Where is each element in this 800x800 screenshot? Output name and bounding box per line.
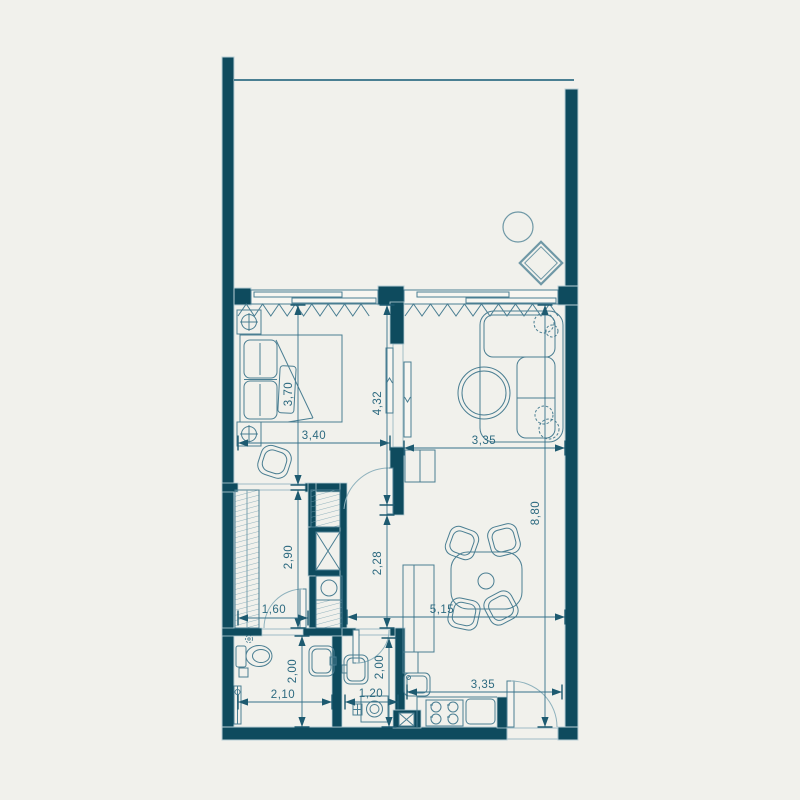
bedroom-furniture [237, 310, 342, 481]
sofa [480, 311, 563, 442]
living-sliding-panel [404, 362, 411, 437]
sofa-pillow [539, 419, 559, 439]
nightstand [237, 310, 261, 334]
window-pier-right [558, 286, 578, 305]
bedroom-door [344, 468, 393, 514]
living-window [404, 290, 558, 304]
dining-chair [443, 524, 481, 562]
divider-wall-upper [390, 302, 404, 344]
kitchen-side-sink [404, 673, 430, 696]
windows [251, 290, 558, 304]
floor-plan-drawing [0, 0, 800, 800]
nightstand [237, 422, 261, 446]
left-wall [222, 57, 234, 740]
terrace [503, 212, 562, 284]
entrance-door [507, 681, 557, 727]
counter-stub-wall [497, 697, 507, 728]
bottom-wall-left [222, 727, 507, 740]
dining-chair [481, 588, 522, 629]
bathroom-door-threshold [262, 629, 303, 635]
burner-icon [448, 714, 458, 724]
dining-set [443, 522, 523, 632]
tap-icon [407, 676, 411, 680]
bathroom-fixtures [234, 635, 336, 724]
floor-plan: 3,70 3,40 4,32 3,35 8,80 2,90 2,28 1,60 … [0, 0, 800, 800]
floor-drain [239, 668, 248, 677]
worktop-sink [466, 699, 495, 724]
folded-duvet [278, 366, 296, 414]
towel-rail [234, 686, 241, 724]
laundry-fixtures [342, 655, 388, 722]
sofa-pillow [546, 325, 558, 337]
bedroom-chair [255, 443, 294, 481]
dining-chair [446, 596, 482, 632]
bathroom-door [264, 589, 306, 628]
bed [240, 335, 342, 422]
entrance-threshold [507, 728, 558, 739]
toilet [236, 646, 272, 668]
bathroom-north-wall-left [222, 628, 262, 636]
washing-machine [353, 696, 388, 722]
wardrobe [235, 490, 259, 628]
bedroom-passage-threshold [238, 484, 305, 490]
bathroom-north-wall-right [303, 628, 347, 636]
laundry-door-threshold [356, 629, 390, 635]
stove [426, 700, 463, 726]
coffee-table [458, 367, 510, 419]
kitchen-counter [417, 697, 497, 727]
living-room-furniture [458, 311, 563, 442]
drain-flower-icon [245, 635, 252, 642]
boiler-unit [316, 576, 342, 600]
sliding-partition [386, 344, 411, 447]
dining-chair [486, 522, 523, 559]
terrace-table [503, 212, 533, 242]
burner-icon [431, 702, 441, 712]
sofa-pillow [535, 406, 553, 424]
burner-icon [448, 702, 458, 712]
pocket-cavity [393, 344, 403, 447]
blanket-fold [288, 418, 313, 422]
dining-table [451, 552, 522, 609]
sofa-pillow [534, 313, 554, 333]
right-wall [565, 89, 578, 740]
bottom-wall-right [558, 727, 578, 740]
tall-cabinet-upper [405, 450, 435, 482]
column-west-lower [309, 576, 316, 628]
burner-icon [431, 714, 441, 724]
window-pier-left [234, 288, 251, 305]
shelves [316, 600, 342, 628]
terrace-chair [520, 242, 562, 284]
closet [311, 490, 340, 527]
bedroom-window [251, 290, 378, 304]
living-curtain [405, 304, 558, 316]
tall-cabinet-lower [403, 565, 434, 652]
